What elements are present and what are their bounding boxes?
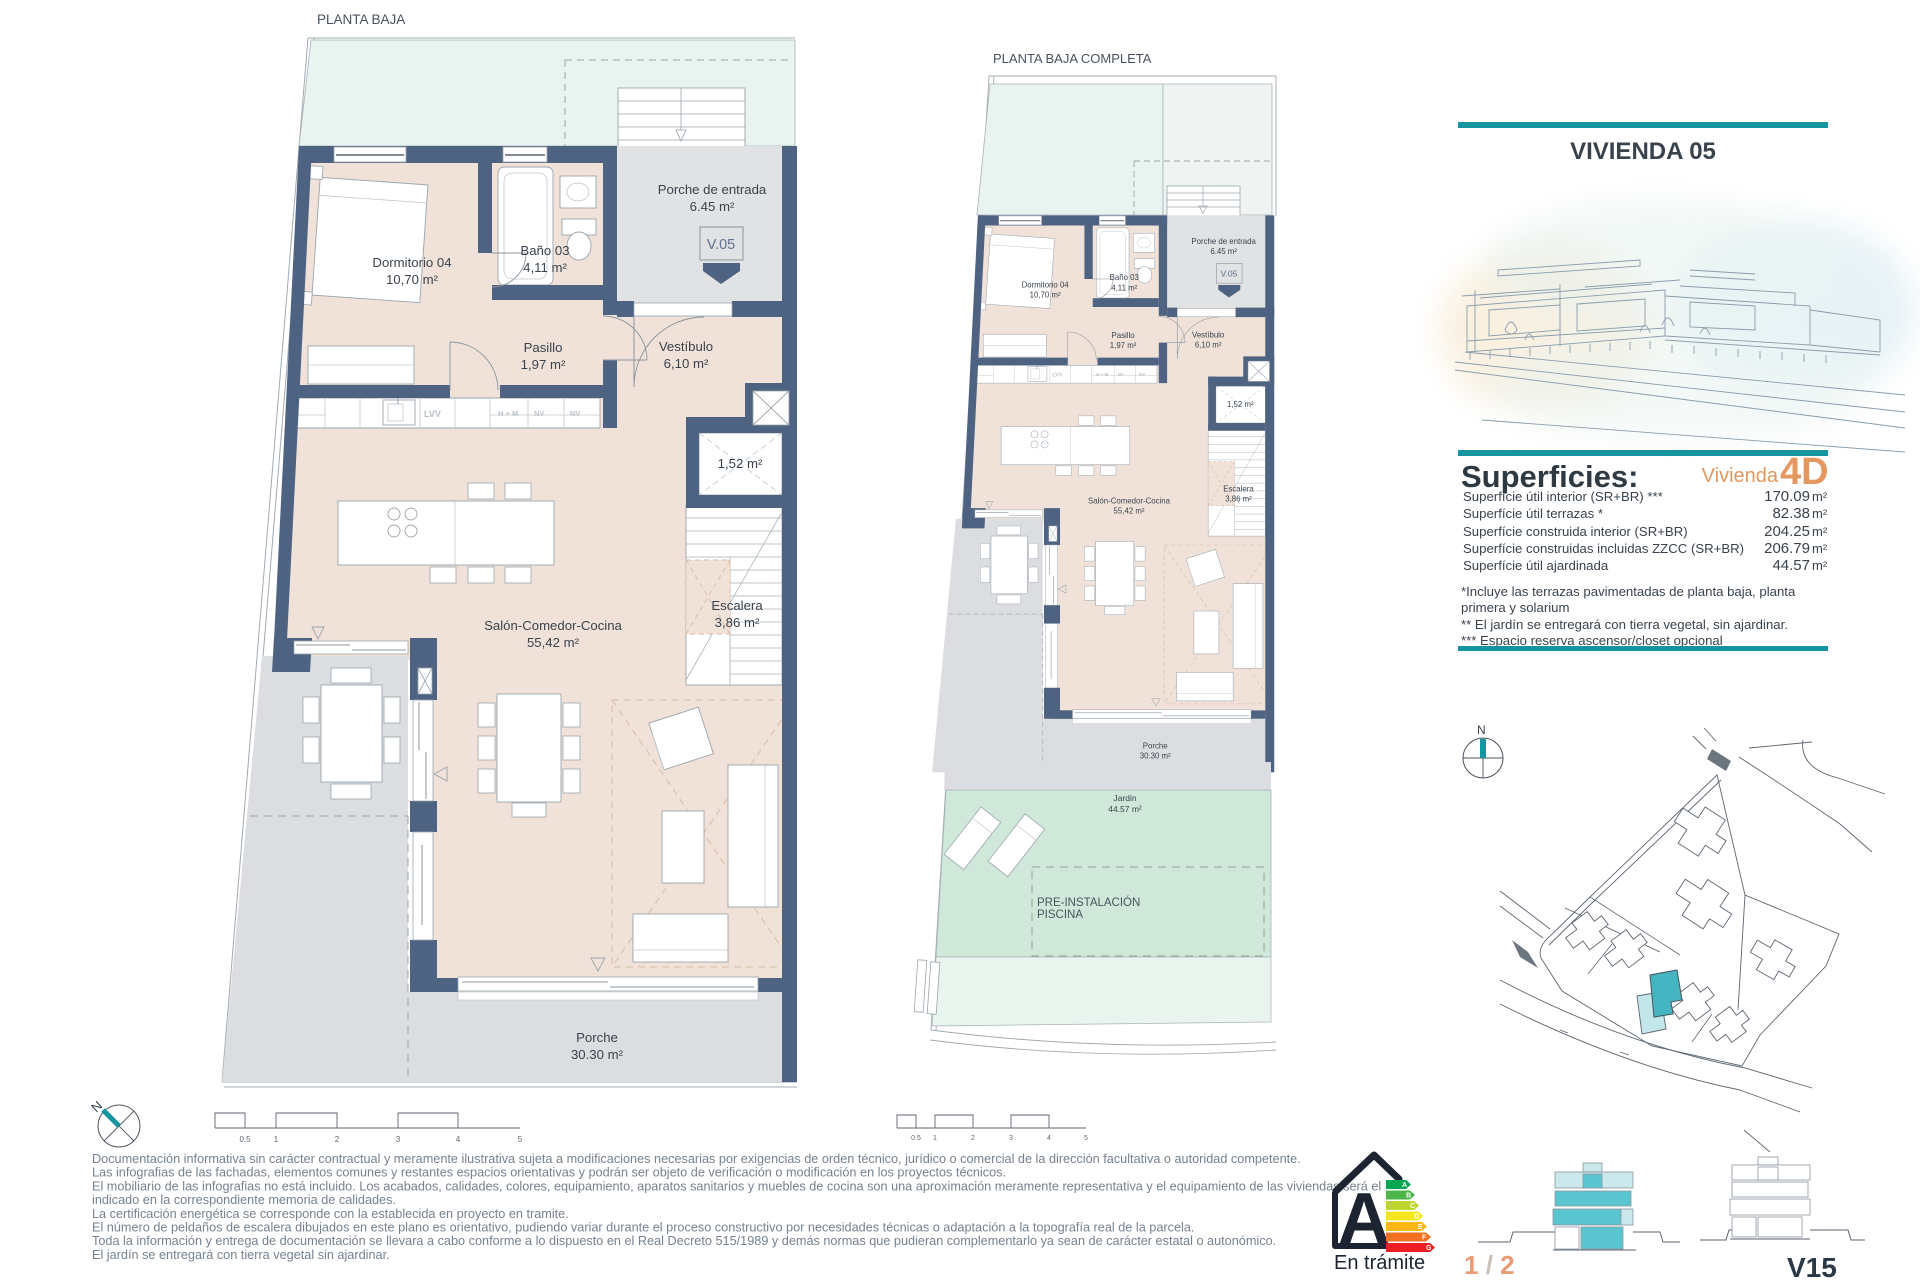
svg-text:Las infografias de las fachada: Las infografias de las fachadas, element… [92,1166,1006,1180]
svg-text:F: F [1422,1235,1427,1242]
svg-text:Superfície construida interior: Superfície construida interior (SR+BR) [1463,524,1688,539]
svg-text:m²: m² [1812,506,1828,521]
svg-text:Escalera: Escalera [711,598,763,613]
svg-text:10,70 m²: 10,70 m² [386,272,439,287]
svg-text:E: E [1418,1224,1423,1231]
svg-text:B: B [1406,1193,1411,1200]
svg-text:El mobiliario de las infografi: El mobiliario de las infografias no está… [92,1179,1381,1193]
svg-text:Pasillo: Pasillo [524,340,563,355]
svg-text:Vivienda: Vivienda [1702,465,1779,487]
svg-text:Dormitorio 04: Dormitorio 04 [372,255,451,270]
svg-text:4D: 4D [1780,451,1829,493]
svg-text:82.38: 82.38 [1772,505,1810,522]
svg-text:Vestíbulo: Vestíbulo [659,339,713,354]
svg-text:Superfície útil ajardinada: Superfície útil ajardinada [1463,558,1609,573]
svg-text:Salón-Comedor-Cocina: Salón-Comedor-Cocina [484,618,622,633]
svg-text:1 / 2: 1 / 2 [1464,1250,1515,1280]
svg-text:N: N [1477,723,1486,737]
svg-text:En trámite: En trámite [1334,1252,1425,1274]
svg-text:Superfície construidas incluid: Superfície construidas incluidas ZZCC (S… [1463,541,1744,556]
svg-text:LVV: LVV [424,409,441,419]
svg-text:Porche de entrada: Porche de entrada [658,182,767,197]
svg-text:C: C [1410,1203,1415,1210]
svg-text:6,10 m²: 6,10 m² [664,356,709,371]
svg-text:PISCINA: PISCINA [1037,909,1083,921]
svg-text:m²: m² [1812,541,1828,556]
svg-text:170.09: 170.09 [1764,488,1810,505]
svg-text:2: 2 [335,1135,340,1144]
svg-text:204.25: 204.25 [1764,523,1810,540]
svg-text:5: 5 [1084,1135,1088,1142]
svg-text:D: D [1414,1214,1419,1221]
svg-text:55,42 m²: 55,42 m² [527,635,580,650]
svg-text:La certificación energética se: La certificación energética se correspon… [92,1207,569,1221]
svg-text:1,97 m²: 1,97 m² [521,357,566,372]
svg-text:PLANTA BAJA: PLANTA BAJA [317,12,405,27]
svg-text:A: A [1338,1179,1390,1259]
svg-text:Superfície útil interior (SR+B: Superfície útil interior (SR+BR) *** [1463,489,1663,504]
svg-text:4: 4 [1047,1135,1051,1142]
svg-text:VIVIENDA 05: VIVIENDA 05 [1570,138,1716,165]
svg-text:primera y solarium: primera y solarium [1461,600,1569,615]
svg-text:0.5: 0.5 [239,1135,251,1144]
svg-text:NV: NV [534,409,544,418]
svg-text:Documentación informativa sin: Documentación informativa sin carácter c… [92,1152,1301,1166]
svg-text:206.79: 206.79 [1764,540,1810,557]
svg-text:El número de peldaños de escal: El número de peldaños de escalera dibuja… [92,1221,1194,1235]
svg-text:Superfície útil terrazas *: Superfície útil terrazas * [1463,506,1603,521]
svg-text:44.57 m²: 44.57 m² [1108,804,1142,814]
svg-text:G: G [1426,1245,1432,1252]
svg-text:A: A [1402,1182,1407,1189]
svg-text:V.05: V.05 [707,237,736,253]
svg-text:3,86 m²: 3,86 m² [715,615,760,630]
svg-text:H + M: H + M [498,409,518,418]
svg-text:5: 5 [518,1135,523,1144]
svg-text:NV: NV [570,409,580,418]
svg-text:6.45 m²: 6.45 m² [690,199,735,214]
svg-text:m²: m² [1812,524,1828,539]
svg-text:0.5: 0.5 [911,1135,921,1142]
svg-text:m²: m² [1812,489,1828,504]
svg-text:Toda la información y entrega: Toda la información y entrega de documen… [92,1234,1276,1248]
svg-text:30.30 m²: 30.30 m² [571,1047,624,1062]
svg-text:1: 1 [933,1135,937,1142]
svg-text:1,52 m²: 1,52 m² [718,456,763,471]
svg-text:*Incluye las terrazas paviment: *Incluye las terrazas pavimentadas de pl… [1461,584,1796,599]
svg-text:m²: m² [1812,558,1828,573]
svg-text:44.57: 44.57 [1772,557,1810,574]
svg-text:Jardin: Jardin [1113,793,1136,803]
svg-text:3: 3 [1009,1135,1013,1142]
svg-text:indicado en la correspondiente: indicado en la correspondiente memoria d… [92,1193,396,1207]
svg-text:4: 4 [456,1135,461,1144]
svg-text:Baño 03: Baño 03 [520,243,569,258]
svg-text:** El jardín se entregará con: ** El jardín se entregará con tierra veg… [1461,617,1788,632]
svg-text:El jardín se entregará con tie: El jardín se entregará con tierra vegeta… [92,1248,390,1262]
svg-text:V15: V15 [1787,1252,1837,1280]
svg-text:PLANTA BAJA COMPLETA: PLANTA BAJA COMPLETA [993,51,1152,66]
svg-text:*** Espacio reserva ascensor/c: *** Espacio reserva ascensor/closet opci… [1461,633,1723,648]
svg-text:1: 1 [274,1135,279,1144]
svg-text:PRE-INSTALACIÓN: PRE-INSTALACIÓN [1037,896,1140,909]
svg-text:4,11 m²: 4,11 m² [523,260,567,275]
svg-text:3: 3 [396,1135,401,1144]
svg-text:2: 2 [971,1135,975,1142]
svg-text:Porche: Porche [576,1030,618,1045]
